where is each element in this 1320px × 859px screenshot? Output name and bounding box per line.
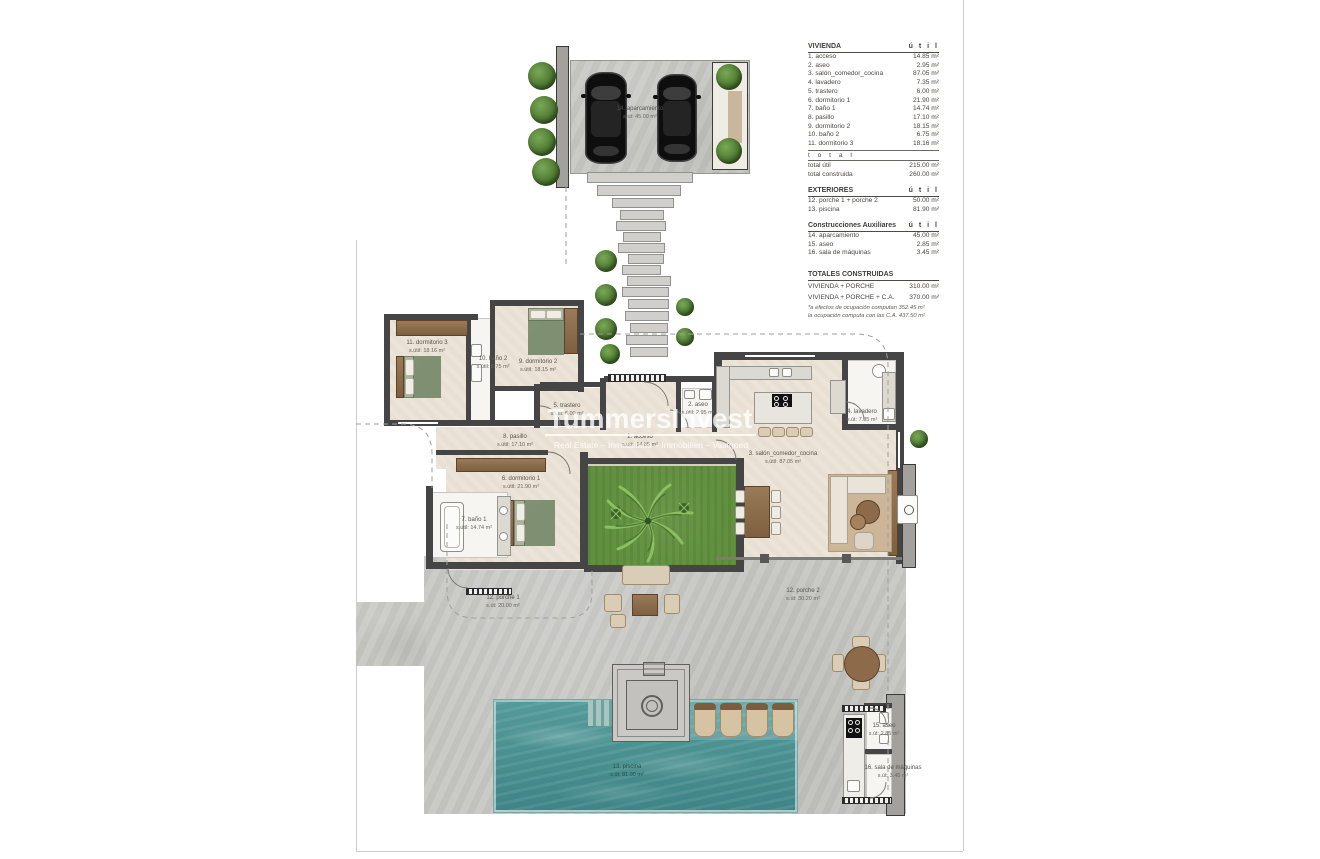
round-dining-table bbox=[844, 646, 880, 682]
fireplace bbox=[897, 495, 918, 524]
pillow bbox=[546, 310, 562, 319]
room-name: 11. dormitorio 3 bbox=[406, 340, 447, 347]
room-name: 9. dormitorio 2 bbox=[519, 359, 557, 366]
room-area: s.útil: 21.90 m² bbox=[502, 484, 540, 490]
bush bbox=[676, 298, 694, 316]
chair bbox=[771, 506, 781, 519]
stepping-stone bbox=[625, 311, 669, 321]
stepping-stone bbox=[616, 221, 666, 231]
room-label-aseo-exterior: 15. aseo s.út: 2.85 m² bbox=[869, 723, 900, 737]
hatch-strip bbox=[842, 705, 886, 712]
vanity bbox=[497, 496, 511, 556]
pillow bbox=[516, 503, 525, 521]
room-name: 13. piscina bbox=[610, 764, 644, 771]
wall bbox=[842, 424, 902, 430]
chair bbox=[832, 654, 844, 672]
terrace-deck-west bbox=[356, 602, 426, 666]
washing-machine bbox=[883, 408, 895, 420]
wall bbox=[540, 382, 604, 387]
stool bbox=[786, 427, 799, 437]
pool-steps bbox=[588, 700, 614, 726]
stool bbox=[772, 427, 785, 437]
entry-doormat bbox=[608, 374, 666, 382]
legend-section-title: VIVIENDA bbox=[808, 42, 841, 52]
floor-plan-sheet: 14. aparcamiento s.út: 45.00 m² 11. dorm… bbox=[0, 0, 1320, 859]
outdoor-sofa bbox=[622, 565, 670, 585]
window bbox=[898, 432, 900, 468]
outdoor-chair bbox=[604, 594, 622, 612]
burner bbox=[783, 396, 788, 401]
parcel-boundary-south bbox=[356, 851, 963, 852]
bed-blanket bbox=[413, 356, 441, 398]
room-area: s.út: 45.00 m² bbox=[617, 114, 663, 120]
stepping-stone bbox=[618, 243, 665, 253]
sun-lounger bbox=[720, 703, 742, 737]
legend-row: 15. aseo2.85 m² bbox=[808, 241, 939, 250]
legend-row: 8. pasillo17.10 m² bbox=[808, 114, 939, 123]
courtyard-lawn bbox=[586, 464, 740, 568]
burner bbox=[774, 402, 779, 407]
window bbox=[398, 422, 438, 424]
room-name: 14. aparcamiento bbox=[617, 106, 663, 113]
burner bbox=[774, 396, 779, 401]
outdoor-chair bbox=[610, 614, 626, 628]
paving-slab bbox=[597, 185, 681, 196]
sink bbox=[769, 368, 779, 377]
room-area: s.út: 2.85 m² bbox=[869, 731, 900, 737]
wall bbox=[436, 450, 548, 455]
room-name: 12. porche 1 bbox=[486, 595, 520, 602]
sink bbox=[782, 368, 792, 377]
stepping-stone bbox=[628, 299, 669, 309]
room-name: 7. baño 1 bbox=[456, 517, 492, 524]
legend-row: total construida260.00 m² bbox=[808, 170, 939, 180]
room-label-dormitorio3: 11. dormitorio 3 s.útil: 18.16 m² bbox=[406, 340, 447, 354]
bush bbox=[528, 128, 556, 156]
room-name: 6. dormitorio 1 bbox=[502, 476, 540, 483]
outdoor-chair bbox=[664, 594, 680, 614]
legend-column-header: ú t i l bbox=[909, 186, 939, 196]
wall bbox=[584, 458, 742, 464]
legend-row: 13. piscina81.90 m² bbox=[808, 206, 939, 215]
wall bbox=[864, 749, 892, 754]
wardrobe bbox=[564, 308, 578, 354]
room-name: 8. pasillo bbox=[497, 434, 533, 441]
bush bbox=[532, 158, 560, 186]
bush bbox=[595, 250, 617, 272]
room-label-piscina: 13. piscina s.út: 81.90 m² bbox=[610, 764, 644, 778]
stepping-stone bbox=[622, 287, 669, 297]
bed-blanket bbox=[528, 320, 564, 355]
pillow bbox=[530, 310, 546, 319]
sun-lounger bbox=[746, 703, 768, 737]
room-area: s.út: 3.45 m² bbox=[864, 773, 921, 779]
burner bbox=[783, 402, 788, 407]
legend-footnote: *a efectos de ocupación computan 352.45 … bbox=[808, 305, 948, 320]
room-area: s.út: 7.35 m² bbox=[847, 417, 878, 423]
room-area: s.út: 30.20 m² bbox=[786, 596, 820, 602]
parcel-boundary-west bbox=[356, 240, 357, 851]
stepping-stone bbox=[622, 265, 661, 275]
watermark-title: TummersInvest bbox=[540, 403, 760, 435]
stepping-stone bbox=[630, 323, 668, 333]
room-label-porche2: 12. porche 2 s.út: 30.20 m² bbox=[786, 588, 820, 602]
wall bbox=[578, 300, 584, 392]
watermark-subtitle: Real Estate – Inmobiliaria – Immobilien … bbox=[548, 440, 754, 450]
room-area: s.útil: 6.75 m² bbox=[476, 364, 509, 370]
legend-row: 9. dormitorio 218.15 m² bbox=[808, 123, 939, 132]
stepping-stone bbox=[630, 347, 668, 357]
car-rear-window bbox=[664, 144, 690, 154]
legend-column-header: ú t i l bbox=[909, 221, 939, 231]
room-area: s.út: 81.90 m² bbox=[610, 772, 644, 778]
burner bbox=[848, 720, 853, 725]
hatch-strip bbox=[842, 797, 892, 804]
room-area: s.útil: 18.15 m² bbox=[519, 367, 557, 373]
pillow bbox=[405, 359, 414, 376]
legend-row: total útil215.00 m² bbox=[808, 161, 939, 171]
pillow bbox=[516, 524, 525, 542]
bush bbox=[676, 328, 694, 346]
porch-column bbox=[760, 554, 769, 563]
fireplace-ring bbox=[904, 505, 914, 515]
platform-ring-inner bbox=[646, 700, 658, 712]
wall bbox=[426, 486, 433, 569]
sink bbox=[499, 532, 508, 541]
burner bbox=[855, 728, 860, 733]
wall bbox=[384, 314, 390, 426]
chair bbox=[771, 522, 781, 535]
dining-table bbox=[744, 486, 770, 538]
legend-row: 5. trastero6.00 m² bbox=[808, 88, 939, 97]
room-label-salon: 3. salón_comedor_cocina s.útil: 87.05 m² bbox=[749, 451, 817, 465]
kitchen-cabinet bbox=[830, 380, 846, 414]
wardrobe bbox=[396, 320, 468, 336]
setback-line bbox=[356, 424, 432, 488]
car-mirror bbox=[696, 95, 701, 99]
car-windshield bbox=[591, 86, 620, 100]
bush bbox=[910, 430, 928, 448]
legend-row: 4. lavadero7.35 m² bbox=[808, 79, 939, 88]
legend-section-header: EXTERIORES ú t i l bbox=[808, 186, 939, 197]
legend-section-header: VIVIENDA ú t i l bbox=[808, 42, 939, 53]
legend-vivienda: VIVIENDA ú t i l 1. acceso14.85 m² 2. as… bbox=[808, 42, 939, 180]
room-label-sala-maquinas: 16. sala de máquinas s.út: 3.45 m² bbox=[864, 765, 921, 779]
bed-blanket bbox=[524, 500, 555, 546]
legend-row: 3. salón_comedor_cocina87.05 m² bbox=[808, 70, 939, 79]
room-label-dormitorio1: 6. dormitorio 1 s.útil: 21.90 m² bbox=[502, 476, 540, 490]
legend-row: 6. dormitorio 121.90 m² bbox=[808, 97, 939, 106]
wardrobe bbox=[456, 458, 546, 472]
stepping-stone bbox=[626, 335, 668, 345]
legend-row: VIVIENDA + PORCHE + C.A.370.00 m² bbox=[808, 292, 939, 303]
planter-path bbox=[728, 91, 742, 143]
room-name: 10. baño 2 bbox=[476, 356, 509, 363]
legend-total-label: t o t a l bbox=[808, 150, 939, 161]
pillow bbox=[405, 378, 414, 395]
sofa bbox=[830, 476, 848, 544]
chair bbox=[735, 522, 745, 535]
room-area: s.út: 20.00 m² bbox=[486, 603, 520, 609]
room-name: 16. sala de máquinas bbox=[864, 765, 921, 772]
pool-platform bbox=[612, 664, 690, 742]
chair bbox=[771, 490, 781, 503]
legend-section-header: TOTALES CONSTRUIDAS bbox=[808, 270, 939, 281]
watermark-underline bbox=[545, 434, 756, 436]
stool bbox=[800, 427, 813, 437]
burner bbox=[848, 728, 853, 733]
stepping-stone bbox=[623, 232, 661, 242]
room-label-bano1: 7. baño 1 s.útil: 14.74 m² bbox=[456, 517, 492, 531]
car-rear-window bbox=[593, 146, 620, 156]
legend-row: VIVIENDA + PORCHE310.00 m² bbox=[808, 281, 939, 292]
outdoor-table bbox=[632, 594, 658, 616]
bush bbox=[528, 62, 556, 90]
car-roof bbox=[663, 101, 692, 136]
bush bbox=[595, 318, 617, 340]
legend-row: 11. dormitorio 318.16 m² bbox=[808, 140, 939, 149]
sun-lounger bbox=[694, 703, 716, 737]
sun-lounger bbox=[772, 703, 794, 737]
wall bbox=[490, 300, 584, 306]
coffee-table bbox=[850, 514, 866, 530]
room-label-aparcamiento: 14. aparcamiento s.út: 45.00 m² bbox=[617, 106, 663, 120]
porch-column bbox=[842, 554, 851, 563]
legend-row: 7. baño 114.74 m² bbox=[808, 105, 939, 114]
legend-totales: TOTALES CONSTRUIDAS VIVIENDA + PORCHE310… bbox=[808, 270, 939, 303]
burner bbox=[855, 720, 860, 725]
bush bbox=[530, 96, 558, 124]
pouf bbox=[854, 532, 874, 550]
legend-row: 16. sala de máquinas3.45 m² bbox=[808, 249, 939, 258]
room-area: s.útil: 17.10 m² bbox=[497, 442, 533, 448]
doormat bbox=[466, 588, 512, 595]
room-name: 15. aseo bbox=[869, 723, 900, 730]
washbasin bbox=[684, 390, 695, 399]
legend-section-title: EXTERIORES bbox=[808, 186, 853, 196]
car-windshield bbox=[663, 87, 691, 100]
room-area: s.útil: 18.16 m² bbox=[406, 348, 447, 354]
legend-row: 14. aparcamiento45.00 m² bbox=[808, 232, 939, 241]
room-label-dormitorio2: 9. dormitorio 2 s.útil: 18.15 m² bbox=[519, 359, 557, 373]
pool-ladder bbox=[643, 662, 665, 676]
room-name: 3. salón_comedor_cocina bbox=[749, 451, 817, 458]
room-area: s.útil: 87.05 m² bbox=[749, 459, 817, 465]
car-mirror bbox=[626, 94, 631, 98]
legend-auxiliares: Construcciones Auxiliares ú t i l 14. ap… bbox=[808, 221, 939, 258]
legend-section-title: TOTALES CONSTRUIDAS bbox=[808, 270, 893, 280]
cooktop bbox=[772, 394, 792, 407]
room-name: 4. lavadero bbox=[847, 409, 878, 416]
legend-exteriores: EXTERIORES ú t i l 12. porche 1 + porche… bbox=[808, 186, 939, 214]
bush bbox=[716, 64, 742, 90]
paving-slab bbox=[587, 172, 693, 183]
stepping-stone bbox=[612, 198, 674, 208]
sink bbox=[499, 506, 508, 515]
platform-ring bbox=[641, 695, 663, 717]
kitchen-counter bbox=[716, 366, 812, 380]
toilet bbox=[699, 389, 712, 400]
window bbox=[745, 355, 815, 357]
room-label-bano2: 10. baño 2 s.útil: 6.75 m² bbox=[476, 356, 509, 370]
legend-section-title: Construcciones Auxiliares bbox=[808, 221, 896, 231]
legend-row: 1. acceso14.85 m² bbox=[808, 53, 939, 62]
stepping-stone bbox=[628, 254, 664, 264]
chair bbox=[735, 506, 745, 519]
room-name: 12. porche 2 bbox=[786, 588, 820, 595]
wall bbox=[580, 452, 588, 569]
car-mirror bbox=[581, 94, 586, 98]
legend-row: 12. porche 1 + porche 250.00 m² bbox=[808, 197, 939, 206]
legend-section-header: Construcciones Auxiliares ú t i l bbox=[808, 221, 939, 232]
wall bbox=[430, 562, 588, 569]
bush bbox=[595, 284, 617, 306]
bush bbox=[716, 138, 742, 164]
room-label-porche1: 12. porche 1 s.út: 20.00 m² bbox=[486, 595, 520, 609]
car-mirror bbox=[653, 95, 658, 99]
room-label-pasillo: 8. pasillo s.útil: 17.10 m² bbox=[497, 434, 533, 448]
legend-row: 10. baño 26.75 m² bbox=[808, 131, 939, 140]
chair bbox=[735, 490, 745, 503]
stepping-stone bbox=[627, 276, 671, 286]
sink bbox=[847, 780, 860, 792]
legend-column-header: ú t i l bbox=[909, 42, 939, 52]
outdoor-cooktop bbox=[846, 718, 862, 738]
stepping-stone bbox=[620, 210, 664, 220]
bush bbox=[600, 344, 620, 364]
legend-row: 2. aseo2.95 m² bbox=[808, 62, 939, 71]
room-area: s.útil: 14.74 m² bbox=[456, 525, 492, 531]
parcel-boundary-east bbox=[963, 0, 964, 851]
bed-headboard bbox=[396, 356, 404, 398]
room-label-lavadero: 4. lavadero s.út: 7.35 m² bbox=[847, 409, 878, 423]
porch-edge bbox=[716, 557, 904, 560]
